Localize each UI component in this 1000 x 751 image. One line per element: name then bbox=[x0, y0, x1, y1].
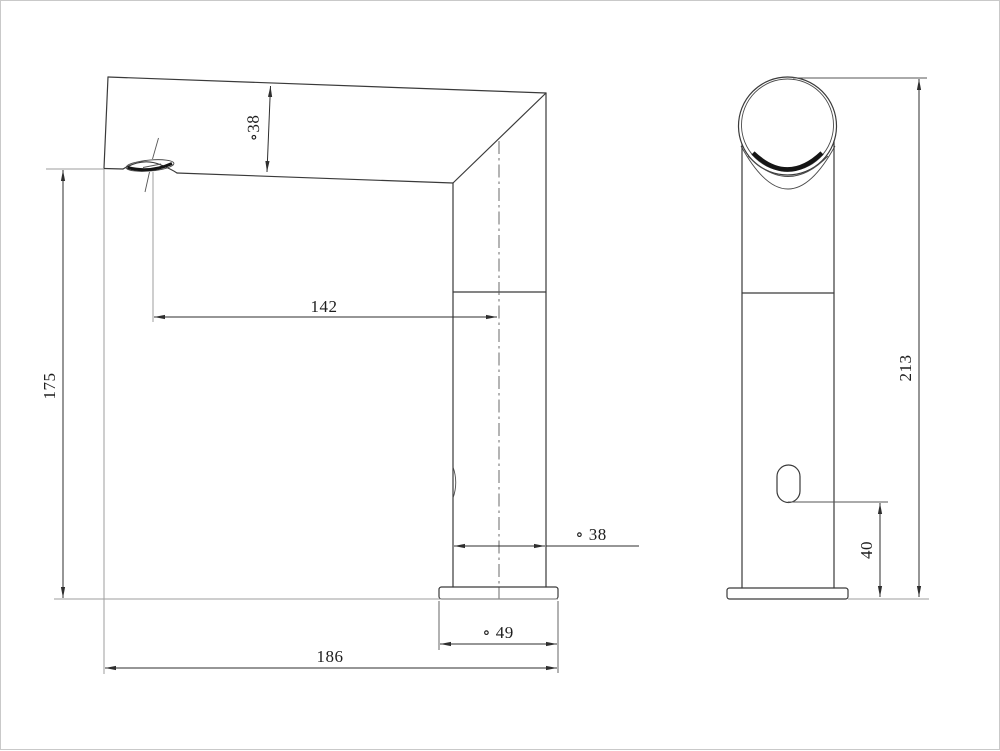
dim-overall-depth: 186 bbox=[105, 647, 557, 668]
dim-label-spout-diameter: ∘38 bbox=[243, 114, 263, 141]
front-view-faucet-outline bbox=[727, 77, 848, 599]
sensor-window bbox=[777, 465, 800, 503]
drawing-page: ∘38 142 175 ∘ 38 bbox=[0, 0, 1000, 750]
dim-spout-diameter: ∘38 bbox=[243, 86, 270, 172]
spout-bottom-ledge bbox=[104, 169, 123, 170]
dim-label-sensor-height: 40 bbox=[857, 541, 876, 559]
dim-spout-height: 175 bbox=[40, 170, 63, 598]
spout-end-outer-circle bbox=[739, 77, 837, 175]
side-view: ∘38 142 175 ∘ 38 bbox=[40, 77, 639, 674]
spout-body-inner-corner bbox=[453, 93, 546, 183]
aerator-axis-centerline-upper bbox=[153, 138, 159, 159]
dim-overall-height: 213 bbox=[793, 78, 927, 597]
dim-label-base-diameter: ∘ 49 bbox=[482, 623, 514, 642]
spout-rim-shadow-band bbox=[753, 153, 822, 170]
dim-label-overall-depth: 186 bbox=[317, 647, 344, 666]
dim-base-diameter: ∘ 49 bbox=[439, 601, 558, 673]
aerator-axis-centerline-lower bbox=[145, 172, 150, 192]
dim-line-spout-diameter bbox=[267, 86, 271, 172]
dim-label-spout-reach: 142 bbox=[311, 297, 338, 316]
spout-underside-edge bbox=[177, 173, 453, 183]
dim-sensor-height: 40 bbox=[788, 502, 888, 597]
side-view-faucet-outline bbox=[104, 77, 558, 599]
spout-top-edge bbox=[108, 77, 546, 93]
dim-label-overall-height: 213 bbox=[896, 355, 915, 382]
spout-left-edge bbox=[104, 77, 108, 168]
dim-label-body-diameter: ∘ 38 bbox=[575, 525, 607, 544]
dim-label-spout-height: 175 bbox=[40, 373, 59, 400]
front-view: 213 40 bbox=[727, 77, 929, 599]
dim-spout-reach: 142 bbox=[154, 297, 497, 317]
base-flange-front bbox=[727, 588, 848, 599]
base-flange-side bbox=[439, 587, 558, 599]
technical-drawing-svg: ∘38 142 175 ∘ 38 bbox=[1, 1, 1000, 751]
